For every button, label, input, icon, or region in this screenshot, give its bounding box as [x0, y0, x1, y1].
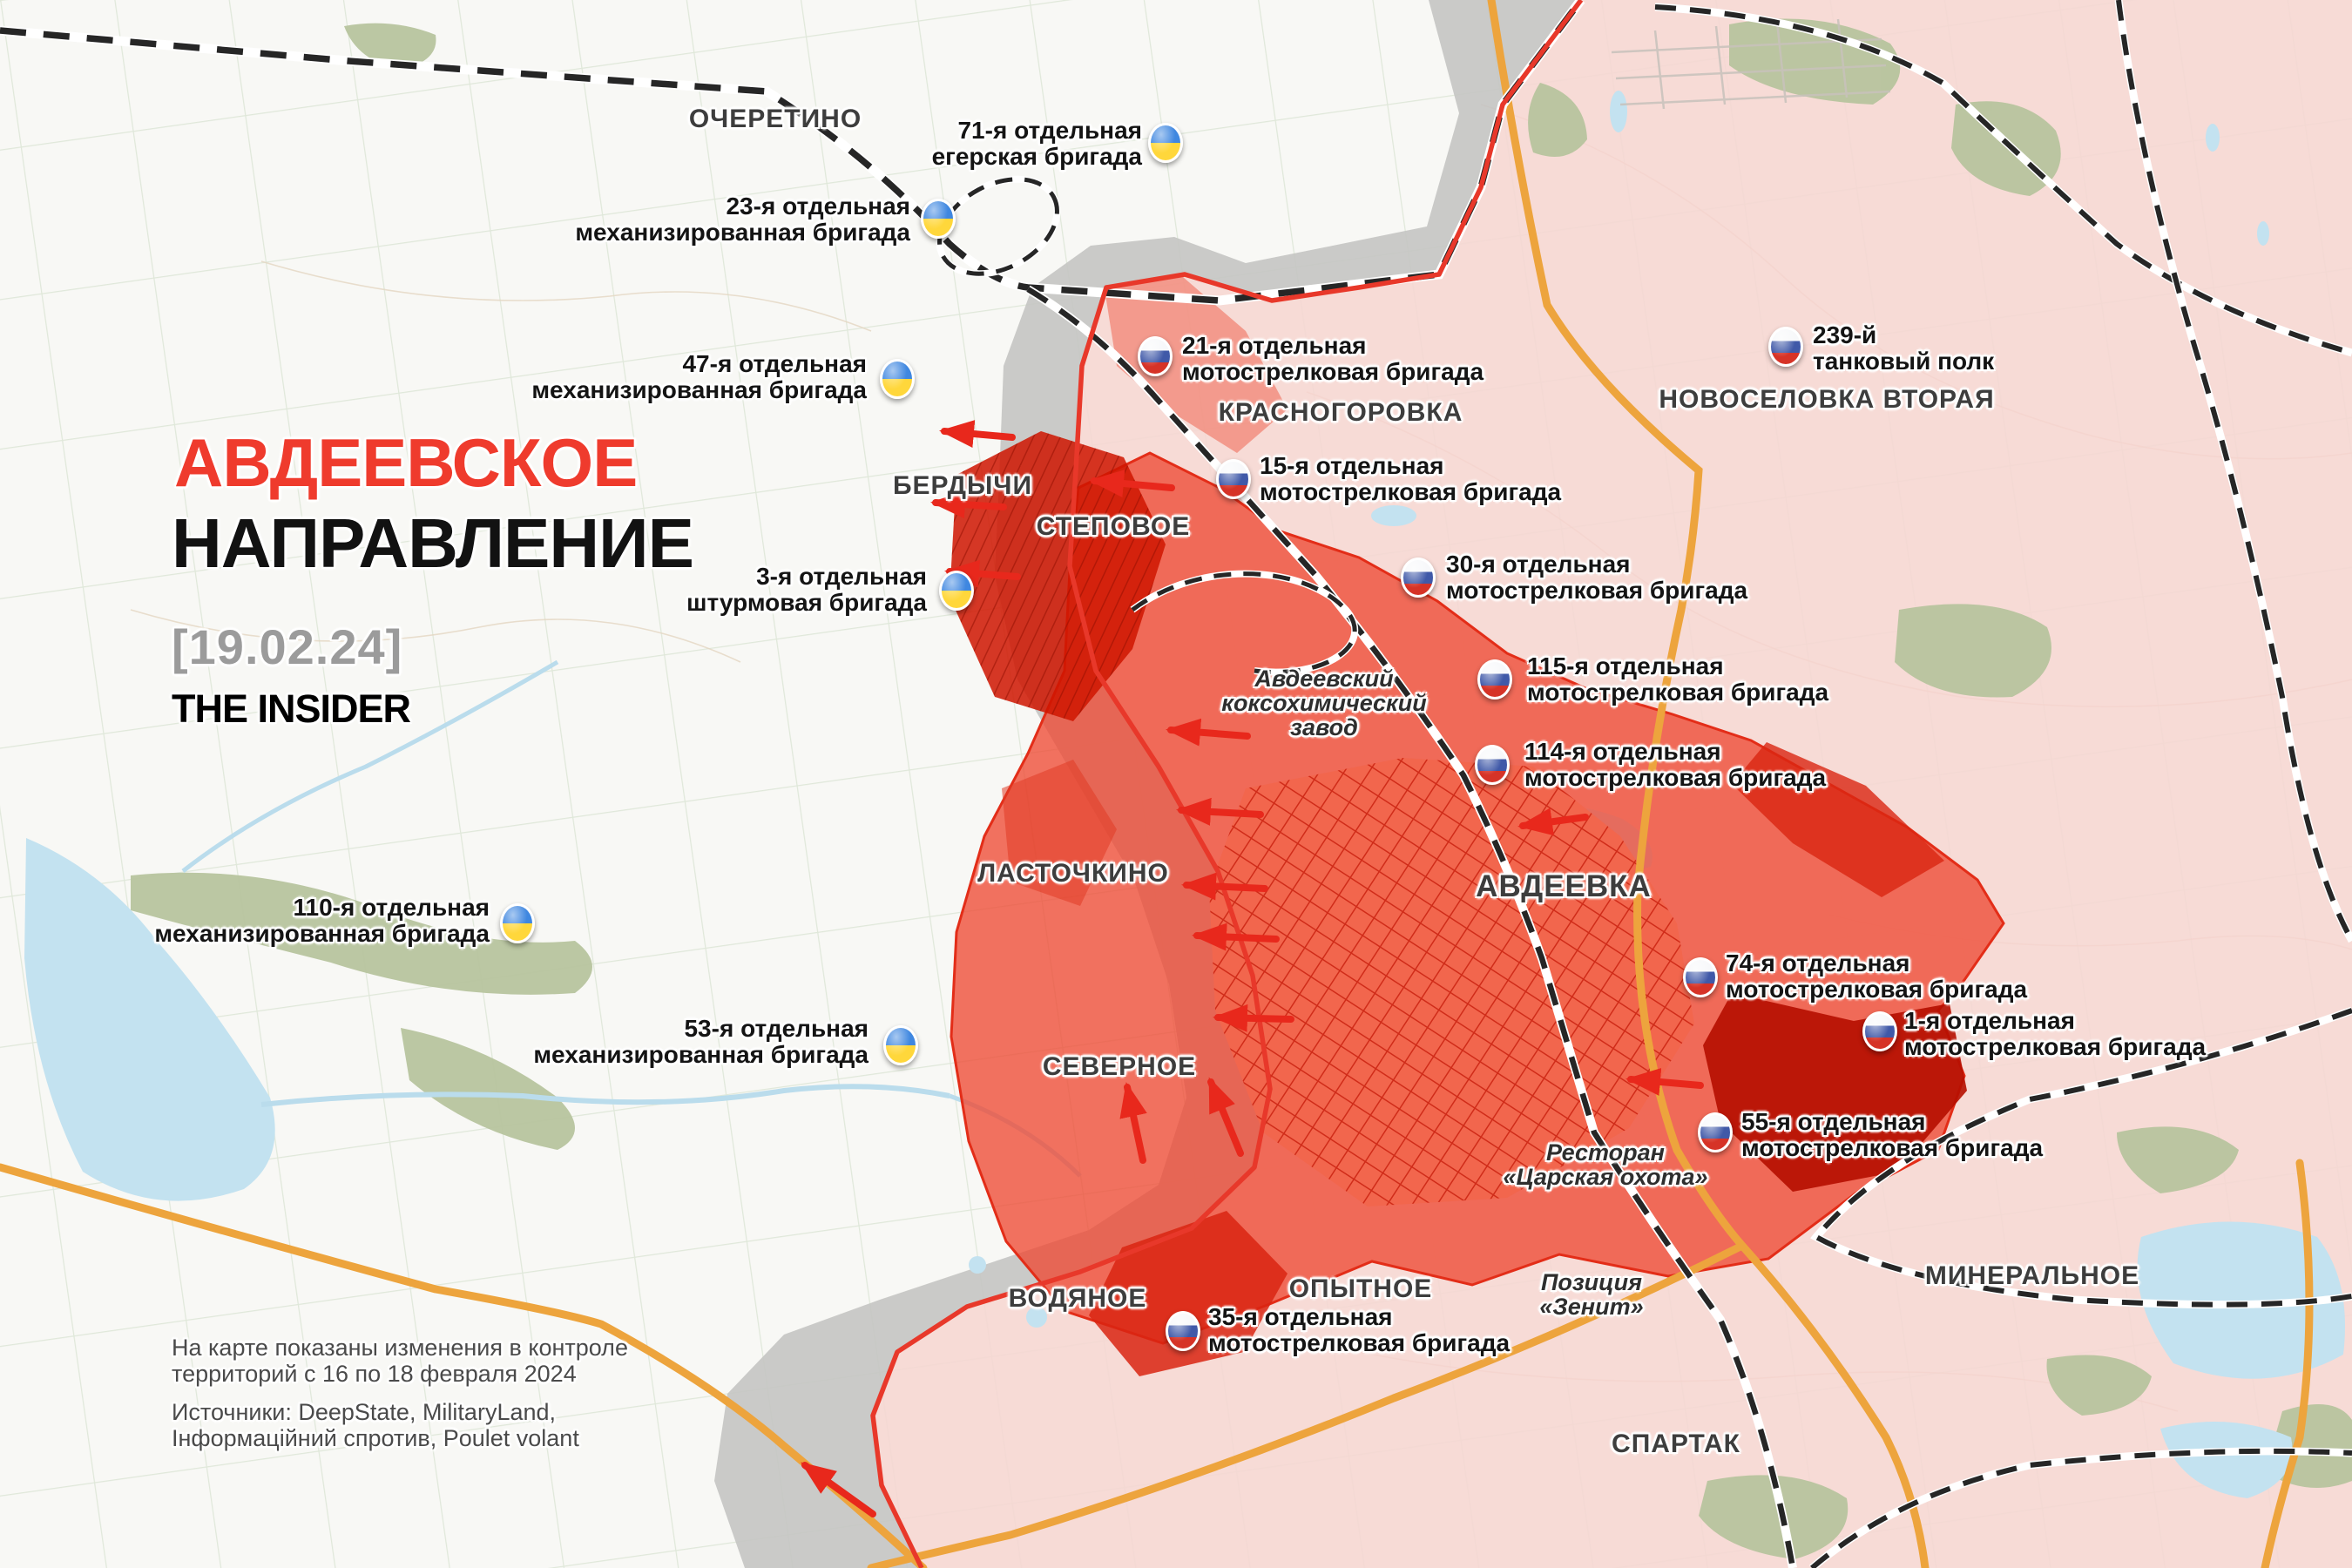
unit-line: 115-я отдельная — [1527, 653, 1828, 679]
city-label-lastochkino: ЛАСТОЧКИНО — [977, 859, 1169, 889]
unit-label-ru-114-motor: 114-я отдельная мотострелковая бригада — [1524, 739, 1826, 791]
unit-line: мотострелковая бригада — [1527, 679, 1828, 706]
flag-pin-ua-71-icon — [1148, 123, 1183, 163]
footnote: На карте показаны изменения в контроле т… — [172, 1335, 628, 1451]
unit-line: 114-я отдельная — [1524, 739, 1826, 765]
unit-line: механизированная бригада — [533, 1042, 868, 1068]
flag-pin-ua-110-icon — [500, 903, 535, 943]
unit-label-ru-1-motor: 1-я отдельная мотострелковая бригада — [1904, 1008, 2206, 1060]
sources-line: Источники: DeepState, MilitaryLand, — [172, 1399, 628, 1425]
unit-label-ru-115-motor: 115-я отдельная мотострелковая бригада — [1527, 653, 1828, 706]
unit-line: егерская бригада — [932, 144, 1142, 170]
landmark-restaurant-tsarskaya-okhota: Ресторан «Царская охота» — [1503, 1140, 1707, 1189]
flag-pin-ru-35-icon — [1166, 1311, 1200, 1351]
unit-label-ru-21-motor: 21-я отдельная мотострелковая бригада — [1182, 333, 1484, 385]
landmark-koksokhim-plant: Авдеевский коксохимический завод — [1221, 666, 1426, 740]
flag-pin-ua-53-icon — [883, 1025, 918, 1065]
flag-pin-ru-21-icon — [1138, 336, 1173, 376]
unit-line: мотострелковая бригада — [1524, 765, 1826, 791]
city-label-mineralnoe: МИНЕРАЛЬНОЕ — [1925, 1261, 2139, 1291]
unit-line: 3-я отдельная — [686, 564, 927, 590]
flag-pin-ua-47-icon — [880, 359, 915, 399]
unit-label-ua-53-mech: 53-я отдельная механизированная бригада — [533, 1016, 868, 1068]
unit-label-ru-35-motor: 35-я отдельная мотострелковая бригада — [1208, 1304, 1510, 1356]
flag-pin-ru-1-icon — [1862, 1011, 1897, 1051]
unit-line: 71-я отдельная — [932, 118, 1142, 144]
sources-line: Інформаційний спротив, Poulet volant — [172, 1425, 628, 1451]
unit-line: мотострелковая бригада — [1182, 359, 1484, 385]
unit-line: 110-я отдельная — [154, 895, 490, 921]
unit-line: 47-я отдельная — [531, 351, 867, 377]
map-title-line2: НАПРАВЛЕНИЕ — [172, 504, 693, 584]
unit-line: 74-я отдельная — [1726, 950, 2027, 977]
unit-line: механизированная бригада — [154, 921, 490, 947]
unit-line: 35-я отдельная — [1208, 1304, 1510, 1330]
city-label-spartak: СПАРТАК — [1612, 1429, 1740, 1459]
unit-line: 23-я отдельная — [575, 193, 910, 220]
flag-pin-ua-3-icon — [939, 571, 974, 611]
unit-label-ru-239-tank: 239-й танковый полк — [1813, 322, 1994, 375]
unit-line: мотострелковая бригада — [1904, 1034, 2206, 1060]
flag-pin-ru-30-icon — [1401, 558, 1436, 598]
unit-line: 21-я отдельная — [1182, 333, 1484, 359]
city-label-krasnogorovka: КРАСНОГОРОВКА — [1219, 398, 1463, 428]
unit-line: мотострелковая бригада — [1726, 977, 2027, 1003]
the-insider-logo: THE INSIDER — [172, 686, 410, 732]
unit-label-ru-15-motor: 15-я отдельная мотострелковая бригада — [1260, 453, 1561, 505]
unit-line: 239-й — [1813, 322, 1994, 348]
city-label-berdychi: БЕРДЫЧИ — [893, 471, 1032, 501]
flag-pin-ru-74-icon — [1683, 957, 1718, 997]
city-label-stepovoe: СТЕПОВОЕ — [1037, 512, 1190, 542]
unit-label-ru-55-motor: 55-я отдельная мотострелковая бригада — [1741, 1109, 2043, 1161]
flag-pin-ru-239-icon — [1768, 327, 1803, 367]
landmark-line: Авдеевский — [1221, 666, 1426, 691]
landmark-line: Ресторан — [1503, 1140, 1707, 1165]
unit-label-ua-3-assault: 3-я отдельная штурмовая бригада — [686, 564, 927, 616]
avdiivka-direction-map: АВДЕЕВСКОЕ НАПРАВЛЕНИЕ [19.02.24] THE IN… — [0, 0, 2352, 1568]
unit-label-ru-30-motor: 30-я отдельная мотострелковая бригада — [1446, 551, 1747, 604]
landmark-line: «Зенит» — [1539, 1294, 1643, 1319]
unit-line: механизированная бригада — [575, 220, 910, 246]
unit-line: 30-я отдельная — [1446, 551, 1747, 578]
unit-line: 55-я отдельная — [1741, 1109, 2043, 1135]
unit-line: мотострелковая бригада — [1260, 479, 1561, 505]
city-label-severnoe: СЕВЕРНОЕ — [1043, 1052, 1196, 1082]
landmark-line: Позиция — [1539, 1270, 1643, 1294]
unit-line: мотострелковая бригада — [1446, 578, 1747, 604]
unit-label-ua-23-mech: 23-я отдельная механизированная бригада — [575, 193, 910, 246]
unit-line: танковый полк — [1813, 348, 1994, 375]
unit-label-ua-110-mech: 110-я отдельная механизированная бригада — [154, 895, 490, 947]
flag-pin-ru-114-icon — [1475, 745, 1510, 785]
unit-line: 1-я отдельная — [1904, 1008, 2206, 1034]
flag-pin-ru-115-icon — [1477, 659, 1512, 700]
landmark-line: «Царская охота» — [1503, 1165, 1707, 1189]
map-title-line1: АВДЕЕВСКОЕ — [174, 423, 637, 503]
unit-line: 15-я отдельная — [1260, 453, 1561, 479]
unit-line: мотострелковая бригада — [1208, 1330, 1510, 1356]
map-date: [19.02.24] — [172, 618, 402, 675]
unit-line: 53-я отдельная — [533, 1016, 868, 1042]
city-label-opytnoe: ОПЫТНОЕ — [1289, 1274, 1433, 1304]
city-label-vodyanoe: ВОДЯНОЕ — [1009, 1284, 1147, 1314]
city-label-ocheretino: ОЧЕРЕТИНО — [689, 105, 862, 134]
landmark-position-zenit: Позиция «Зенит» — [1539, 1270, 1643, 1319]
unit-label-ua-47-mech: 47-я отдельная механизированная бригада — [531, 351, 867, 403]
unit-label-ua-71-jaeger: 71-я отдельная егерская бригада — [932, 118, 1142, 170]
city-label-avdeevka: АВДЕЕВКА — [1476, 869, 1652, 904]
city-label-novoselovka: НОВОСЕЛОВКА ВТОРАЯ — [1659, 385, 1994, 415]
landmark-line: коксохимический — [1221, 691, 1426, 715]
unit-label-ru-74-motor: 74-я отдельная мотострелковая бригада — [1726, 950, 2027, 1003]
unit-line: мотострелковая бригада — [1741, 1135, 2043, 1161]
footnote-line: На карте показаны изменения в контроле — [172, 1335, 628, 1361]
footnote-line: территорий с 16 по 18 февраля 2024 — [172, 1361, 628, 1387]
flag-pin-ru-15-icon — [1216, 459, 1251, 499]
unit-line: механизированная бригада — [531, 377, 867, 403]
flag-pin-ua-23-icon — [921, 199, 956, 239]
landmark-line: завод — [1221, 715, 1426, 740]
unit-line: штурмовая бригада — [686, 590, 927, 616]
